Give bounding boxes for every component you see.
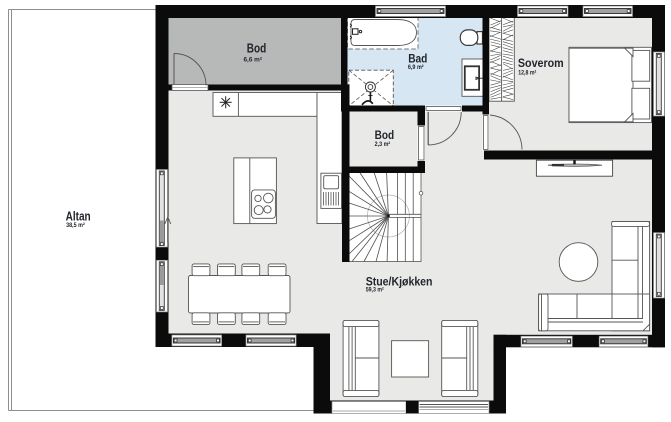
svg-text:38,5 m²: 38,5 m²: [66, 222, 85, 229]
svg-text:Soverom: Soverom: [518, 58, 564, 70]
svg-text:6,9 m²: 6,9 m²: [408, 64, 424, 71]
svg-text:2,3 m²: 2,3 m²: [375, 141, 391, 148]
svg-text:Bod: Bod: [375, 128, 395, 142]
svg-text:59,3 m²: 59,3 m²: [366, 287, 384, 294]
svg-text:6,6 m²: 6,6 m²: [244, 57, 263, 64]
svg-text:Altan: Altan: [66, 210, 91, 224]
svg-text:12,8 m²: 12,8 m²: [518, 69, 536, 76]
svg-text:Bad: Bad: [408, 53, 427, 65]
svg-text:Bod: Bod: [247, 40, 267, 55]
